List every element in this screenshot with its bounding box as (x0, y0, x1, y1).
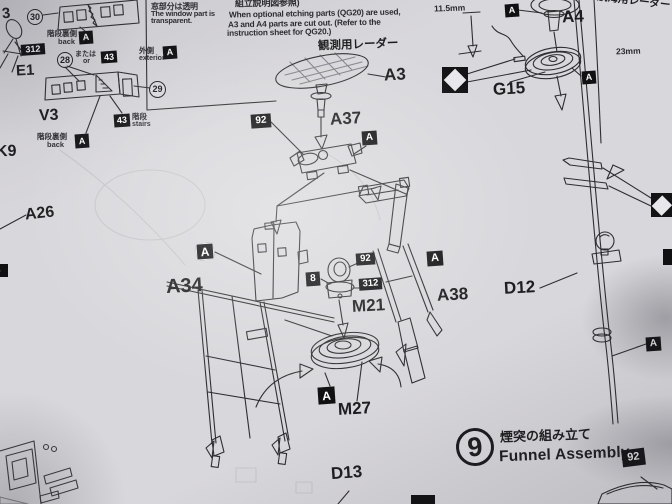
part-a34-tripod-drawing (167, 282, 334, 467)
paint-badge-partial-6: 6 (0, 264, 8, 277)
sprue-badge-a-m27: A (317, 386, 335, 404)
part-label-v3: V3 (39, 108, 59, 125)
part-label-a37: A37 (330, 109, 362, 128)
paint-badge-8-m21: 8 (306, 272, 321, 287)
part-label-k9: K9 (0, 144, 17, 161)
sprue-badge-a-back1: A (79, 31, 94, 45)
sprue-badge-a-a34: A (195, 242, 214, 260)
part-label-m21: M21 (352, 296, 386, 315)
part-funnel-drawing (598, 477, 672, 504)
instruction-sheet-photo: 3 30 階段裏側 back A 312 E1 28 または or 43 外側 … (0, 0, 672, 504)
part-building-upper-drawing (43, 0, 139, 31)
dimension-23mm: 23mm (616, 46, 641, 57)
paint-badge-92-funnel: 92 (621, 448, 646, 468)
assembly-connector-arrows (271, 170, 406, 234)
part-label-partial-3: 3 (1, 6, 11, 22)
circled-number-28: 28 (57, 52, 73, 68)
or-note-en: or (83, 58, 90, 66)
sprue-badge-a-exterior: A (163, 46, 178, 60)
sprue-badge-a-mast: A (646, 336, 662, 351)
partial-badge-bottom (411, 495, 435, 504)
paint-badge-92-a37: 92 (251, 113, 272, 128)
paint-badge-312-m21: 312 (359, 277, 383, 291)
diamond-marker-icon-mast (651, 193, 672, 217)
back-note-en-2: back (47, 141, 64, 150)
paint-badge-312-e1: 312 (21, 43, 46, 56)
circled-number-30: 30 (27, 9, 43, 25)
part-label-d13: D13 (330, 463, 362, 482)
paint-badge-43-stairs: 43 (114, 113, 131, 127)
dimension-11-5mm-lines (459, 12, 481, 57)
sprue-badge-a-a38: A (426, 250, 443, 266)
dimension-11-5mm: 11.5mm (434, 2, 466, 13)
part-label-e1: E1 (16, 63, 35, 79)
back-note-en-1: back (58, 38, 75, 47)
a26-leader-line (0, 215, 26, 229)
sprue-badge-a-a37: A (362, 130, 378, 145)
sprue-badge-a-a4: A (505, 4, 520, 18)
part-label-a4: A4 (562, 8, 584, 26)
deck-drawing-cutoff (0, 441, 78, 504)
part-label-a38: A38 (437, 285, 469, 304)
diamond-marker-icon-g15 (442, 67, 468, 93)
d13-leader-line (338, 491, 349, 504)
section-title-jp: 煙突の組み立て (500, 427, 591, 443)
circled-number-29: 29 (149, 81, 166, 98)
sprue-badge-a-back2: A (75, 134, 90, 149)
stairs-note-en: stairs (132, 121, 151, 129)
sprue-badge-a-g15: A (582, 71, 597, 85)
partial-badge-right-edge (663, 249, 672, 265)
part-mast-d12-drawing (540, 0, 651, 424)
paint-badge-43-or: 43 (101, 50, 118, 63)
exterior-note-en: exterior (139, 55, 165, 63)
paint-badge-92-m21: 92 (356, 252, 376, 265)
part-label-g15: G15 (493, 79, 526, 98)
part-label-m27: M27 (338, 399, 372, 418)
window-note-en2: transparent. (151, 17, 192, 26)
part-a34-panel-drawing (215, 222, 308, 301)
etch-note-en3: instruction sheet for QG20.) (227, 27, 331, 38)
part-label-a26: A26 (24, 205, 55, 224)
part-label-a3: A3 (384, 65, 407, 83)
part-label-d12: D12 (504, 278, 536, 297)
part-label-a34: A34 (166, 275, 204, 297)
